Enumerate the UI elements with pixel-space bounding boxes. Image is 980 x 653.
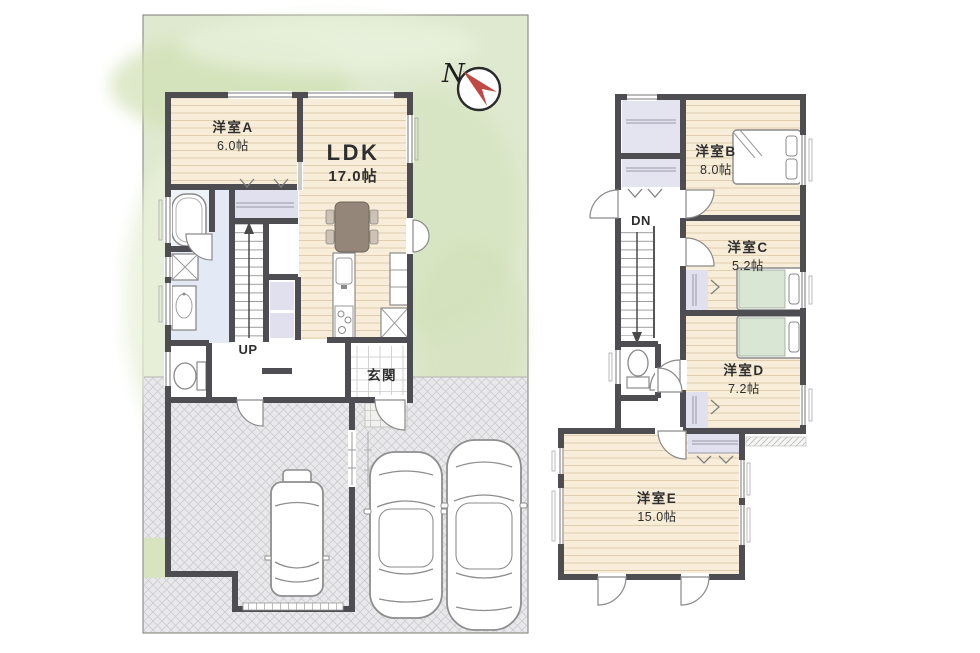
- room-b-size: 8.0帖: [700, 162, 732, 177]
- entrance-label: 玄関: [367, 367, 397, 383]
- chair: [326, 230, 334, 244]
- chair: [370, 230, 378, 244]
- chair: [326, 210, 334, 224]
- stairs-up-label: UP: [238, 342, 257, 357]
- window: [739, 460, 750, 498]
- room-a-size: 6.0帖: [217, 138, 249, 153]
- window: [800, 272, 812, 308]
- refrigerator-icon: [381, 308, 408, 338]
- window: [627, 93, 657, 101]
- stove-icon: [335, 306, 353, 338]
- chair: [370, 210, 378, 224]
- sliding-door: [297, 162, 303, 190]
- compass-north-label: N: [441, 59, 466, 89]
- toilet-1f-icon: [174, 362, 206, 390]
- car-in-garage-icon: [265, 470, 329, 596]
- hall-closet-1: [270, 282, 294, 310]
- window: [552, 448, 564, 474]
- closet-room-a: [232, 190, 298, 219]
- garage-shutter: [243, 603, 343, 610]
- garage-gate: [348, 430, 356, 487]
- door-arc: [681, 573, 709, 605]
- washing-machine-icon: [172, 254, 198, 280]
- ldk-size: 17.0帖: [328, 167, 377, 185]
- floorplan-page: 洋室A 6.0帖 LDK 17.0帖 UP 玄関 N: [0, 0, 980, 653]
- room-a-label: 洋室A: [212, 119, 253, 135]
- window: [609, 350, 622, 384]
- room-b-label: 洋室B: [695, 143, 736, 159]
- bed-single-icon: [737, 316, 803, 358]
- window: [164, 257, 172, 277]
- bed-double-icon: [733, 130, 801, 184]
- faucet-icon: [341, 285, 347, 289]
- window: [552, 488, 564, 544]
- cupboard-icon: [390, 253, 408, 305]
- ldk-label: LDK: [327, 140, 380, 165]
- walk-in-closet: [622, 100, 680, 187]
- window: [164, 352, 172, 386]
- floorplan-drawing: 洋室A 6.0帖 LDK 17.0帖 UP 玄関 N: [0, 0, 980, 653]
- room-d-size: 7.2帖: [728, 381, 760, 396]
- door-arc: [598, 573, 626, 605]
- hall-closet-2: [270, 313, 294, 338]
- room-e-size: 15.0帖: [637, 509, 676, 524]
- room-c-label: 洋室C: [727, 239, 768, 255]
- closet-room-c: [686, 270, 708, 310]
- car-sedan-icon: [364, 452, 448, 618]
- kitchen-sink-icon: [336, 258, 352, 284]
- room-c-size: 5.2帖: [732, 258, 764, 273]
- kitchen-counter: [333, 253, 355, 339]
- bed-single-icon: [737, 268, 803, 310]
- window: [228, 91, 292, 99]
- window: [308, 91, 394, 99]
- closet-room-d: [686, 392, 708, 428]
- eaves-hatch: [746, 437, 806, 446]
- toilet-2f-icon: [627, 350, 649, 388]
- car-sedan-large-icon: [441, 440, 527, 630]
- window: [800, 385, 812, 425]
- closet-room-e: [688, 434, 742, 453]
- door-arc: [590, 190, 622, 218]
- stairs-down-label: DN: [631, 213, 651, 228]
- house-2f: 洋室B 8.0帖 洋室C 5.2帖 洋室D 7.2帖 洋室E 15.0帖 DN: [552, 93, 812, 605]
- window: [800, 135, 812, 185]
- window: [739, 505, 750, 545]
- room-d-label: 洋室D: [723, 362, 764, 378]
- room-e-label: 洋室E: [637, 490, 678, 506]
- washbasin-icon: [172, 286, 196, 330]
